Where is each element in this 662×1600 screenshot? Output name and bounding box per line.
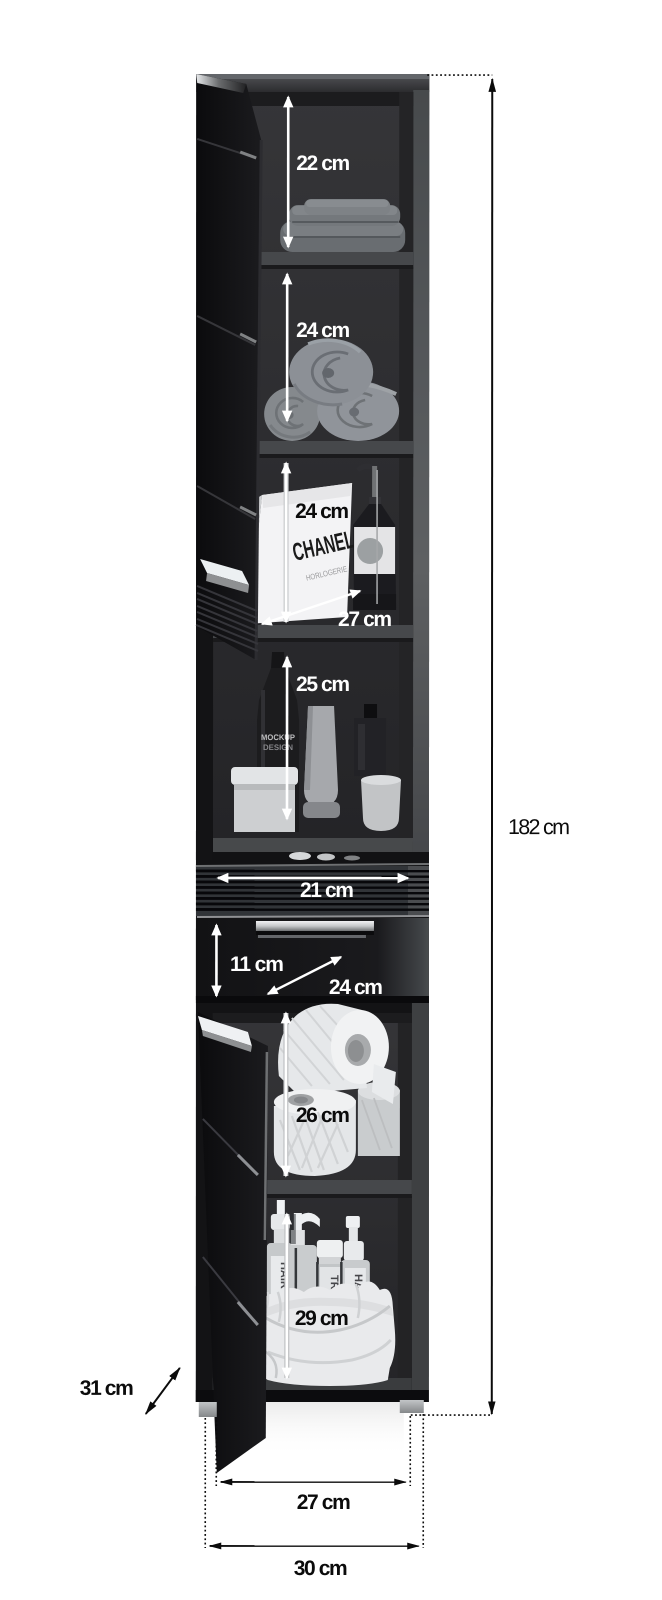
svg-text:11 cm: 11 cm [230,953,284,976]
svg-text:24 cm: 24 cm [295,500,349,523]
svg-text:26 cm: 26 cm [296,1104,350,1127]
svg-text:24 cm: 24 cm [296,319,350,342]
svg-text:30 cm: 30 cm [294,1557,348,1580]
svg-text:29 cm: 29 cm [295,1307,349,1330]
svg-text:24 cm: 24 cm [329,976,383,999]
svg-text:31 cm: 31 cm [80,1377,134,1400]
svg-text:DESIGN: DESIGN [263,743,293,752]
svg-text:27 cm: 27 cm [297,1491,351,1514]
svg-text:22 cm: 22 cm [296,152,350,175]
svg-text:27 cm: 27 cm [338,608,392,631]
svg-text:MOCKUP: MOCKUP [261,733,296,742]
svg-text:182 cm: 182 cm [508,815,570,839]
svg-text:21 cm: 21 cm [300,879,354,902]
svg-text:25 cm: 25 cm [296,673,350,696]
